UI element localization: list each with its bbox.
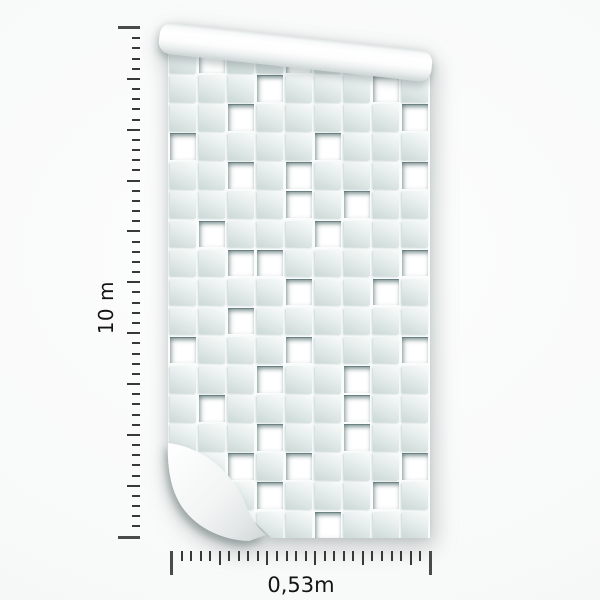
width-ruler: [170, 551, 432, 575]
mosaic-tile: [170, 250, 196, 277]
mosaic-tile: [344, 221, 370, 248]
width-ruler-tick-minor: [257, 551, 259, 561]
mosaic-tile: [402, 133, 428, 160]
mosaic-tile-hole: [286, 337, 312, 364]
mosaic-tile: [228, 279, 254, 306]
mosaic-tile-hole: [286, 162, 312, 189]
mosaic-tile: [286, 395, 312, 422]
mosaic-tile: [373, 366, 399, 393]
mosaic-tile: [257, 337, 283, 364]
mosaic-tile: [257, 221, 283, 248]
mosaic-tile-hole: [228, 308, 254, 335]
mosaic-tile-hole: [402, 162, 428, 189]
mosaic-tile-hole: [373, 482, 399, 509]
mosaic-tile-hole: [373, 75, 399, 102]
mosaic-tile: [344, 133, 370, 160]
mosaic-tile: [228, 75, 254, 102]
width-ruler-tick-minor: [371, 551, 373, 561]
width-ruler-tick-end: [429, 551, 432, 575]
width-ruler-tick-minor: [381, 551, 383, 561]
mosaic-tile: [344, 162, 370, 189]
mosaic-tile: [286, 366, 312, 393]
mosaic-tile: [373, 191, 399, 218]
width-ruler-tick-minor: [276, 551, 278, 561]
mosaic-tile: [344, 250, 370, 277]
width-ruler-tick-minor: [352, 551, 354, 561]
mosaic-tile: [286, 482, 312, 509]
mosaic-tile: [199, 337, 225, 364]
mosaic-tile: [402, 191, 428, 218]
mosaic-tile: [286, 512, 312, 539]
width-ruler-tick-major: [266, 551, 268, 565]
width-ruler-tick-major: [219, 551, 221, 565]
mosaic-tile: [315, 75, 341, 102]
mosaic-tile: [170, 366, 196, 393]
mosaic-tile: [344, 337, 370, 364]
mosaic-tile: [286, 250, 312, 277]
width-ruler-tick-minor: [400, 551, 402, 561]
mosaic-tile: [170, 191, 196, 218]
curl-paper: [168, 443, 266, 541]
mosaic-tile: [286, 133, 312, 160]
mosaic-tile: [170, 308, 196, 335]
mosaic-tile: [286, 221, 312, 248]
mosaic-tile: [199, 191, 225, 218]
mosaic-tile-hole: [257, 250, 283, 277]
mosaic-tile: [257, 191, 283, 218]
mosaic-tile: [315, 337, 341, 364]
mosaic-tile-hole: [257, 75, 283, 102]
product-image: 10 m 0,53m: [0, 0, 600, 600]
mosaic-tile: [402, 424, 428, 451]
mosaic-tile: [199, 75, 225, 102]
mosaic-tile: [286, 75, 312, 102]
mosaic-tile: [315, 395, 341, 422]
mosaic-tile: [199, 366, 225, 393]
mosaic-tile: [257, 133, 283, 160]
width-ruler-tick-minor: [209, 551, 211, 561]
mosaic-tile: [315, 250, 341, 277]
width-ruler-tick-major: [410, 551, 412, 565]
mosaic-tile-hole: [373, 279, 399, 306]
mosaic-tile: [228, 337, 254, 364]
mosaic-tile: [199, 133, 225, 160]
mosaic-tile: [199, 104, 225, 131]
mosaic-tile-hole: [344, 191, 370, 218]
mosaic-tile-hole: [402, 104, 428, 131]
mosaic-tile: [170, 75, 196, 102]
mosaic-tile-hole: [286, 279, 312, 306]
mosaic-tile: [344, 104, 370, 131]
mosaic-tile: [170, 104, 196, 131]
width-ruler-tick-minor: [324, 551, 326, 561]
width-ruler-tick-minor: [391, 551, 393, 561]
width-ruler-tick-major: [314, 551, 316, 565]
mosaic-tile: [373, 221, 399, 248]
width-label: 0,53m: [170, 573, 432, 597]
mosaic-tile-hole: [344, 424, 370, 451]
mosaic-tile-hole: [170, 337, 196, 364]
mosaic-tile: [199, 308, 225, 335]
width-ruler-tick-major: [362, 551, 364, 565]
page-curl: [150, 425, 280, 560]
width-ruler-tick-minor: [343, 551, 345, 561]
mosaic-tile: [228, 395, 254, 422]
mosaic-tile: [373, 453, 399, 480]
mosaic-tile: [344, 482, 370, 509]
mosaic-tile: [315, 482, 341, 509]
mosaic-tile-hole: [344, 395, 370, 422]
mosaic-tile: [315, 366, 341, 393]
mosaic-tile: [315, 453, 341, 480]
mosaic-tile: [402, 482, 428, 509]
mosaic-tile: [315, 162, 341, 189]
width-ruler-tick-minor: [295, 551, 297, 561]
mosaic-tile-hole: [315, 133, 341, 160]
mosaic-tile: [286, 104, 312, 131]
mosaic-tile: [402, 512, 428, 539]
mosaic-tile: [228, 366, 254, 393]
mosaic-tile: [199, 279, 225, 306]
width-ruler-tick-minor: [286, 551, 288, 561]
width-ruler-tick-minor: [305, 551, 307, 561]
wallpaper: [0, 0, 600, 600]
width-ruler-tick-minor: [419, 551, 421, 561]
width-ruler-tick-minor: [190, 551, 192, 561]
mosaic-tile: [257, 279, 283, 306]
mosaic-tile: [373, 395, 399, 422]
mosaic-tile: [373, 424, 399, 451]
mosaic-tile-hole: [315, 512, 341, 539]
mosaic-tile: [257, 308, 283, 335]
mosaic-tile-hole: [286, 453, 312, 480]
mosaic-tile: [402, 395, 428, 422]
mosaic-tile: [286, 424, 312, 451]
mosaic-tile: [257, 395, 283, 422]
width-ruler-tick-minor: [247, 551, 249, 561]
mosaic-tile: [373, 162, 399, 189]
width-ruler-tick-minor: [181, 551, 183, 561]
mosaic-tile-hole: [402, 337, 428, 364]
mosaic-tile: [199, 250, 225, 277]
mosaic-tile: [344, 512, 370, 539]
mosaic-tile: [257, 162, 283, 189]
mosaic-tile: [315, 191, 341, 218]
width-ruler-tick-minor: [228, 551, 230, 561]
mosaic-tile: [373, 337, 399, 364]
mosaic-tile: [402, 366, 428, 393]
width-ruler-tick-minor: [200, 551, 202, 561]
mosaic-tile: [170, 162, 196, 189]
mosaic-tile: [402, 279, 428, 306]
mosaic-tile: [315, 279, 341, 306]
mosaic-tile: [228, 221, 254, 248]
mosaic-tile: [373, 133, 399, 160]
mosaic-tile: [257, 104, 283, 131]
mosaic-tile: [199, 162, 225, 189]
mosaic-tile: [286, 308, 312, 335]
mosaic-tile: [344, 453, 370, 480]
mosaic-tile-hole: [257, 366, 283, 393]
mosaic-tile: [373, 308, 399, 335]
mosaic-tile-hole: [170, 133, 196, 160]
mosaic-tile: [315, 424, 341, 451]
mosaic-tile: [402, 308, 428, 335]
mosaic-tile: [344, 308, 370, 335]
mosaic-tile-hole: [315, 221, 341, 248]
mosaic-tile-hole: [199, 221, 225, 248]
mosaic-tile: [402, 221, 428, 248]
mosaic-tile-hole: [199, 395, 225, 422]
mosaic-tile-hole: [228, 104, 254, 131]
mosaic-tile: [344, 75, 370, 102]
mosaic-tile: [228, 191, 254, 218]
mosaic-tile: [170, 221, 196, 248]
mosaic-tile: [373, 512, 399, 539]
mosaic-tile: [344, 279, 370, 306]
mosaic-tile-hole: [402, 453, 428, 480]
mosaic-tile-hole: [228, 250, 254, 277]
mosaic-tile: [170, 395, 196, 422]
mosaic-tile-hole: [228, 162, 254, 189]
mosaic-tile: [228, 133, 254, 160]
mosaic-tile: [315, 308, 341, 335]
width-ruler-tick-minor: [238, 551, 240, 561]
mosaic-tile: [315, 104, 341, 131]
mosaic-tile: [373, 104, 399, 131]
width-ruler-tick-end: [170, 551, 173, 575]
width-ruler-tick-minor: [333, 551, 335, 561]
mosaic-tile-hole: [286, 191, 312, 218]
mosaic-tile: [373, 250, 399, 277]
mosaic-tile-hole: [344, 366, 370, 393]
mosaic-tile: [170, 279, 196, 306]
mosaic-tile-hole: [402, 250, 428, 277]
